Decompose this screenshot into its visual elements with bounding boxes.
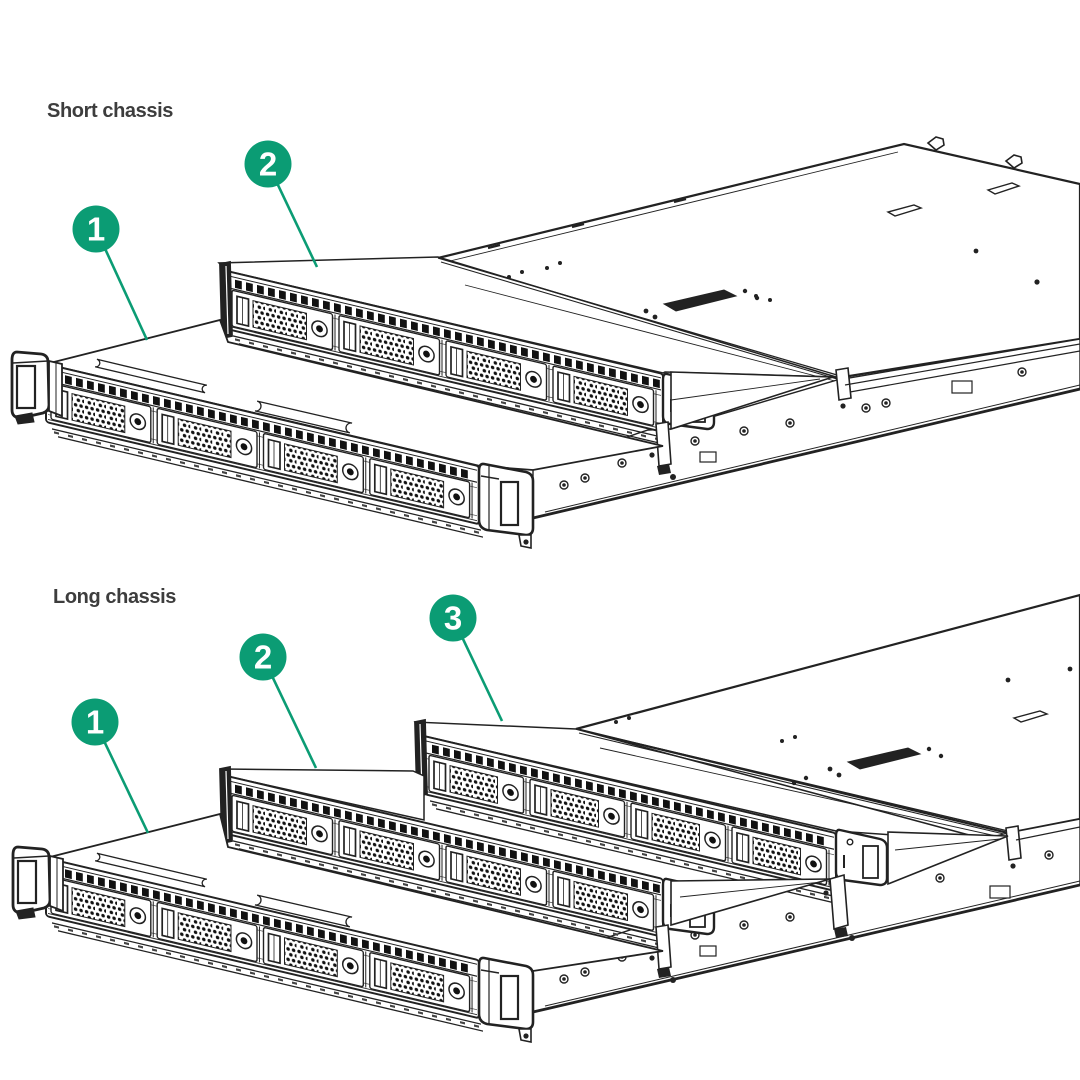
svg-text:3: 3 [444,600,462,637]
svg-text:Long chassis: Long chassis [53,586,176,608]
svg-text:1: 1 [86,704,104,741]
svg-text:1: 1 [87,211,105,248]
svg-text:2: 2 [254,639,272,676]
svg-text:Short chassis: Short chassis [47,100,173,122]
svg-text:2: 2 [259,146,277,183]
